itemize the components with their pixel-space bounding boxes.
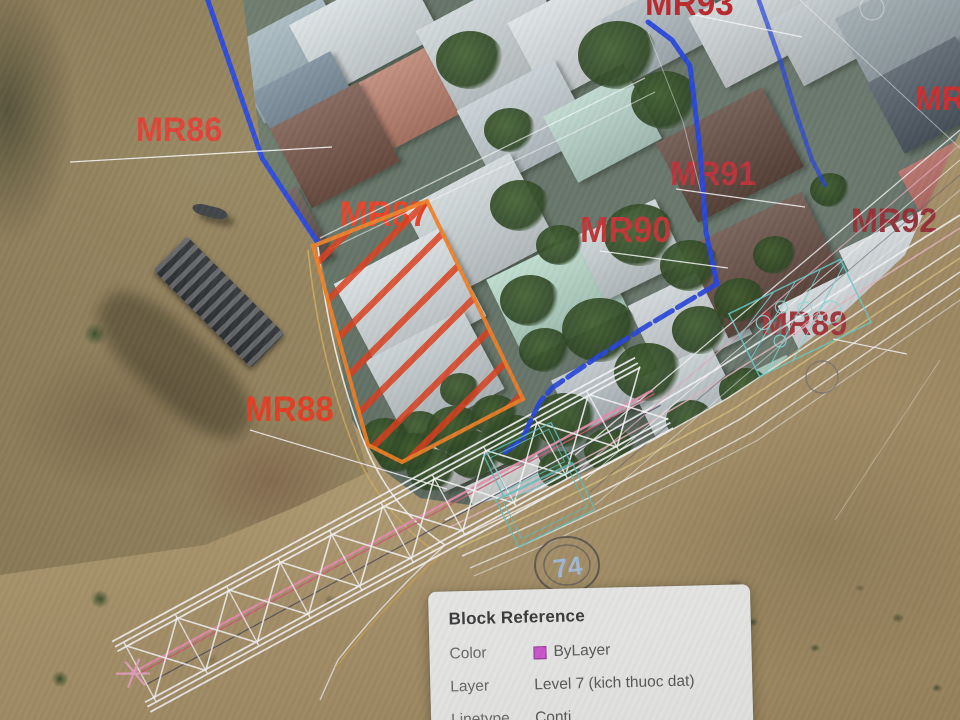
- parcel-hatch-red[interactable]: [40, 160, 948, 540]
- faint-circle-top: [860, 0, 884, 20]
- survey-marker-text: 74: [551, 550, 584, 584]
- tooltip-row-linetype: Linetype Conti: [451, 704, 733, 720]
- tooltip-row-layer: Layer Level 7 (kich thuoc dat): [450, 671, 732, 698]
- layer-label: Layer: [450, 675, 534, 697]
- color-label: Color: [449, 642, 533, 664]
- block-reference-tooltip: Block Reference Color ByLayer Layer Leve…: [428, 584, 754, 720]
- tooltip-title: Block Reference: [448, 601, 731, 632]
- tooltip-row-color: Color ByLayer: [449, 638, 731, 665]
- linetype-value: Conti: [535, 708, 572, 720]
- survey-circle-small[interactable]: [806, 361, 838, 393]
- shore-road-lines[interactable]: [308, 247, 445, 700]
- linetype-label: Linetype: [451, 708, 535, 720]
- cad-viewport: MR93 MR86 MR87 MR88 MR90 MR91 MR92 MR89 …: [0, 0, 960, 720]
- bylayer-color-swatch: [533, 646, 546, 659]
- layer-value: Level 7 (kich thuoc dat): [534, 672, 695, 696]
- color-value: ByLayer: [553, 641, 610, 662]
- survey-circle-74[interactable]: 74: [535, 537, 599, 593]
